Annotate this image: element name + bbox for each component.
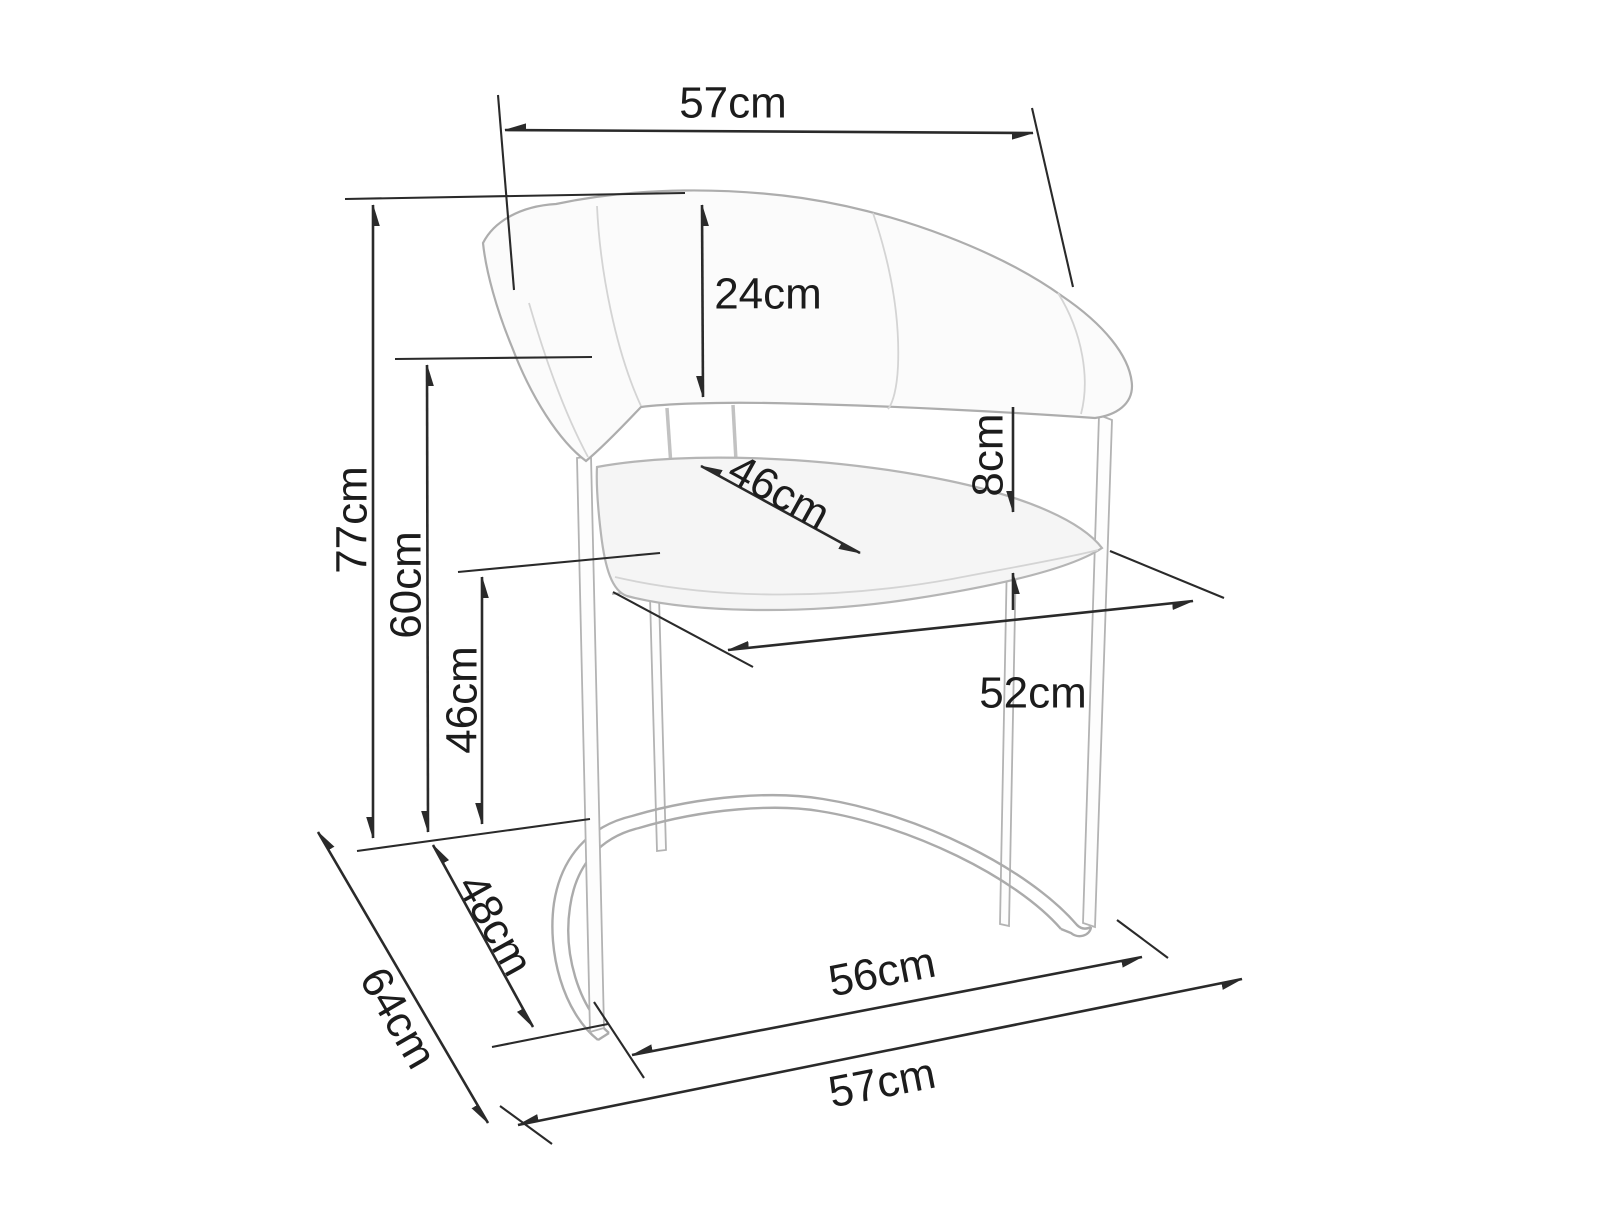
chair-leg-rear-left xyxy=(650,597,666,851)
chair-base-foot-left xyxy=(598,1033,609,1040)
dimension-label-base-width: 56cm xyxy=(825,938,940,1007)
extension-line xyxy=(492,1024,608,1047)
chair-backrest-shell xyxy=(483,190,1132,461)
extension-line xyxy=(1117,920,1168,958)
dimension-label-backrest-height: 24cm xyxy=(714,270,822,319)
dimension-bottom-width: 57cm xyxy=(500,979,1242,1144)
chair-strut-right xyxy=(733,405,736,461)
chair-leg-rear-right xyxy=(1000,556,1016,926)
extension-line xyxy=(594,1002,644,1078)
dimension-diagram: 57cm24cm77cm60cm46cm8cm46cm52cm56cm57cm4… xyxy=(0,0,1620,1215)
dimension-label-overall-height: 77cm xyxy=(328,466,377,574)
dimension-label-backrest-top-height: 60cm xyxy=(382,531,431,639)
dimension-label-seat-thickness: 8cm xyxy=(964,413,1013,496)
dimension-base-depth: 48cm xyxy=(433,845,608,1047)
dimension-label-overall-depth: 64cm xyxy=(350,959,446,1077)
diagram-canvas: 57cm24cm77cm60cm46cm8cm46cm52cm56cm57cm4… xyxy=(0,0,1620,1215)
dimension-line xyxy=(702,205,703,397)
chair-leg-front-left xyxy=(577,456,604,1032)
extension-line xyxy=(1110,551,1224,598)
extension-line xyxy=(1032,108,1073,287)
dimension-label-base-depth: 48cm xyxy=(447,866,542,984)
dimension-label-seat-width: 52cm xyxy=(979,669,1087,718)
dimension-line xyxy=(505,130,1033,133)
dimension-base-width: 56cm xyxy=(594,920,1168,1078)
extension-line xyxy=(357,819,590,851)
dimension-label-top-width: 57cm xyxy=(679,79,787,128)
extension-line xyxy=(500,1106,552,1144)
dimension-overall-depth: 64cm xyxy=(318,832,488,1123)
chair-leg-front-right xyxy=(1083,415,1112,927)
dimension-label-seat-height: 46cm xyxy=(438,646,487,754)
chair-base-inner xyxy=(568,808,1061,1033)
chair-strut-left xyxy=(667,408,671,466)
